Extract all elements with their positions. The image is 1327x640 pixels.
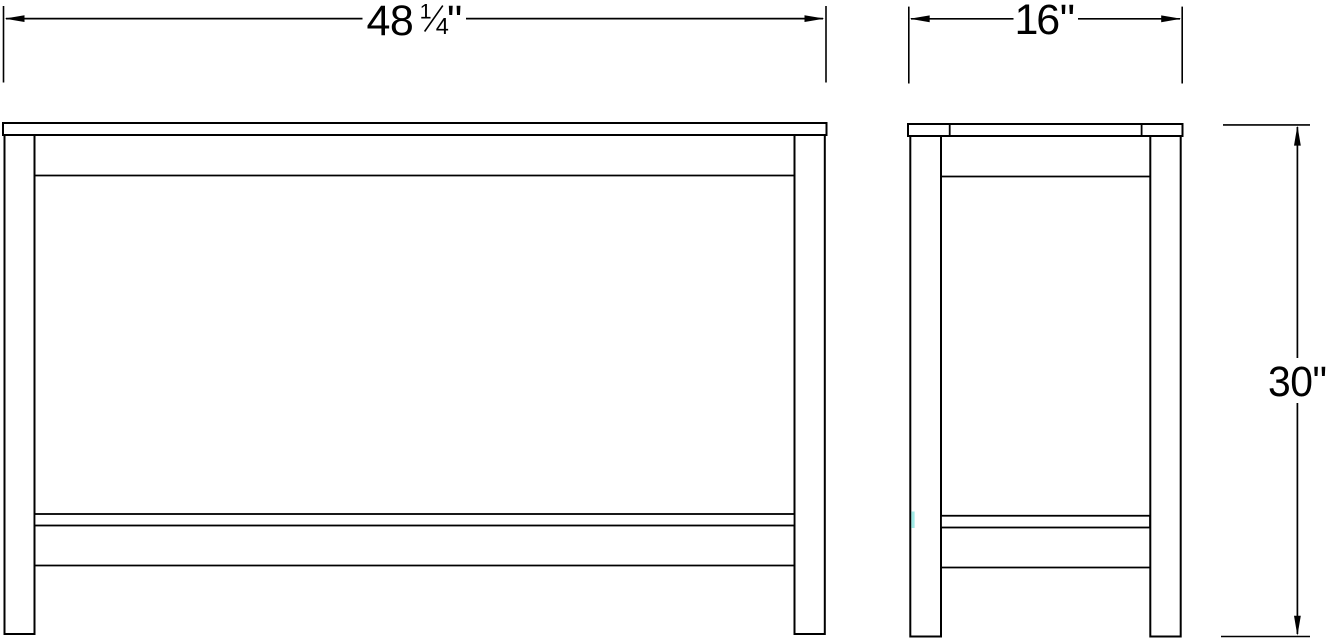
svg-text:1: 1	[1015, 0, 1039, 44]
svg-text:48: 48	[367, 0, 414, 45]
svg-text:6: 6	[1036, 0, 1060, 44]
svg-text:30": 30"	[1268, 357, 1327, 405]
svg-text:1: 1	[420, 0, 432, 24]
svg-text:": "	[447, 0, 462, 45]
svg-text:": "	[1060, 0, 1075, 44]
